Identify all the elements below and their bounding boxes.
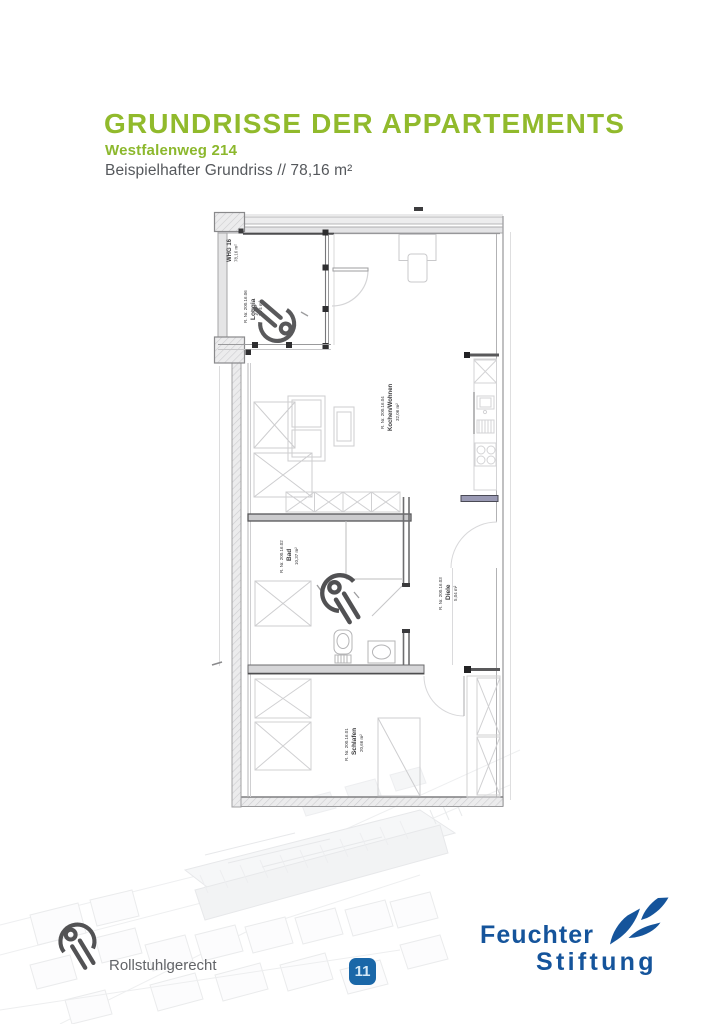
svg-text:Schlafen: Schlafen xyxy=(351,728,358,755)
svg-text:R. Nr. 200.16.02: R. Nr. 200.16.02 xyxy=(279,540,284,573)
svg-text:5,04 m²: 5,04 m² xyxy=(453,585,458,601)
svg-text:R. Nr. 200.16.06: R. Nr. 200.16.06 xyxy=(243,290,248,323)
svg-text:Kochen/Wohnen: Kochen/Wohnen xyxy=(388,383,394,431)
svg-text:Bad: Bad xyxy=(286,549,293,561)
svg-text:32,06 m²: 32,06 m² xyxy=(395,403,400,421)
svg-text:R. Nr. 200.16.04: R. Nr. 200.16.04 xyxy=(380,396,385,429)
svg-text:Diele: Diele xyxy=(445,584,452,600)
svg-text:10,37 m²: 10,37 m² xyxy=(294,547,299,565)
svg-text:20,66 m²: 20,66 m² xyxy=(359,734,364,752)
svg-text:R. Nr. 200.16.03: R. Nr. 200.16.03 xyxy=(438,577,443,610)
svg-text:R. Nr. 200.16.01: R. Nr. 200.16.01 xyxy=(344,728,349,761)
svg-text:WHG 16: WHG 16 xyxy=(227,238,233,262)
svg-text:78,16 m²: 78,16 m² xyxy=(234,244,239,262)
